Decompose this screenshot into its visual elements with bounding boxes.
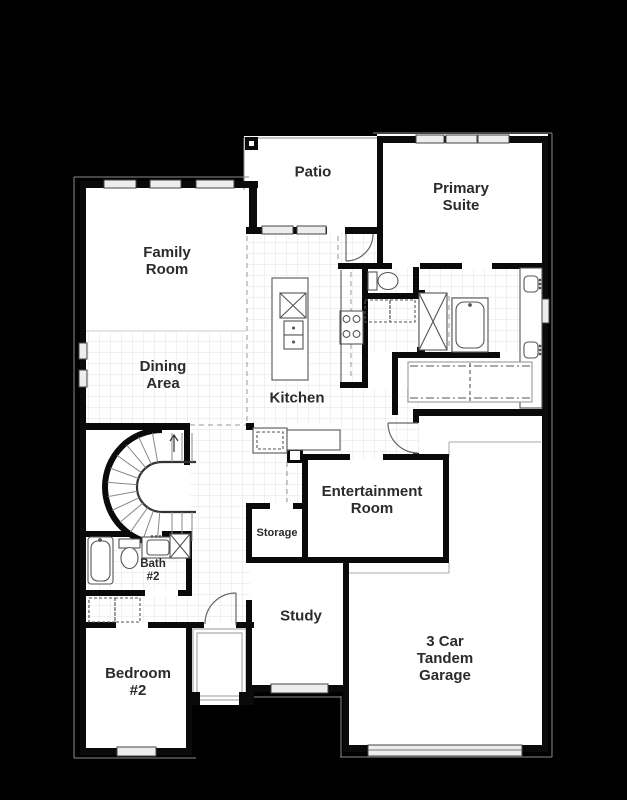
primary-toilet	[368, 272, 398, 290]
bar-cabinet	[253, 428, 340, 453]
family-window	[104, 180, 136, 188]
primary-window	[416, 135, 444, 143]
floor-plan: Patio Primary Suite Family Room Dining A…	[0, 0, 627, 800]
patio-window	[262, 226, 293, 234]
primary-suite-floor	[377, 134, 548, 270]
kitchen-island	[272, 278, 308, 380]
bedroom-window	[117, 747, 156, 756]
primary-window	[446, 135, 477, 143]
patio-floor	[244, 136, 382, 232]
primary-window	[478, 135, 509, 143]
family-window	[150, 180, 181, 188]
primary-tub	[452, 298, 488, 352]
floor-plan-drawing	[0, 0, 627, 800]
toilet	[119, 539, 140, 569]
patio-window	[297, 226, 326, 234]
bathtub	[88, 537, 113, 584]
range-cooktop	[340, 311, 363, 344]
family-window	[196, 180, 234, 188]
shower	[170, 534, 190, 558]
wall-corner-box	[290, 451, 300, 460]
dining-window	[79, 343, 87, 359]
study-window	[271, 684, 328, 693]
patio-column	[245, 137, 258, 150]
study-floor	[246, 557, 349, 692]
primary-closet-rods	[408, 362, 532, 402]
bedroom2-floor	[80, 620, 192, 755]
primary-shower	[419, 293, 447, 350]
dining-window	[79, 370, 87, 387]
